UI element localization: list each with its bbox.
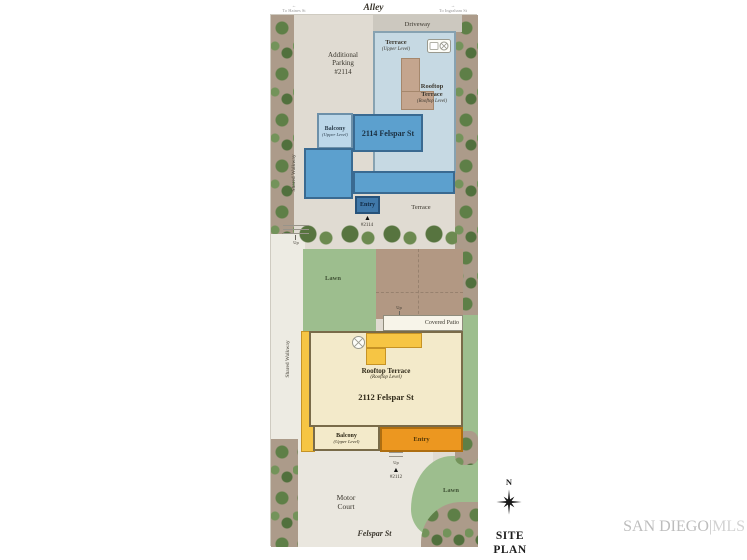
balcony-2112-sub: (Upper Level): [334, 439, 360, 444]
covered-patio-label: Covered Patio: [425, 320, 459, 327]
balcony-2112: Balcony (Upper Level): [313, 425, 380, 451]
compass-rose-icon: [495, 488, 523, 516]
motor-court-label: Motor Court: [316, 493, 376, 511]
up-2112-label: Up: [386, 460, 406, 465]
site-plan-title: SITE PLAN: [478, 530, 542, 558]
covered-patio: Covered Patio: [383, 315, 463, 331]
mls-watermark-secondary: MLS: [712, 518, 745, 535]
spa-icon-2112: [351, 335, 366, 350]
site-plan-sheet: Alley ←To Haines St →To Ingraham St Driv…: [270, 4, 477, 548]
balcony-2114-sub: (Upper Level): [322, 132, 348, 137]
building-2114-wing-left: [304, 148, 353, 199]
shared-walkway-lower-label: Shared Walkway: [285, 319, 295, 399]
balcony-2114: Balcony (Upper Level): [317, 113, 353, 149]
roof-deck-step-2112: [366, 348, 386, 365]
up-upper-label: Up: [283, 240, 309, 245]
spa-icon-2114: [427, 39, 451, 53]
rooftop-terrace-2114-label: Rooftop Terrace (Rooftop Level): [409, 83, 455, 104]
entry-2114-triangle: ▲: [355, 214, 380, 222]
driveway-label: Driveway: [373, 21, 462, 29]
building-2114: 2114 Felspar St: [353, 114, 423, 152]
rooftop-terrace-2112-label: Rooftop Terrace (Rooftop Level): [331, 367, 441, 381]
lawn-mid-label: Lawn: [303, 275, 363, 283]
up-mid-label: Up: [389, 305, 409, 310]
roof-deck-bar-2112: [366, 333, 422, 348]
shared-walkway-upper-label: Shared Walkway: [291, 133, 301, 213]
felspar-street-label: Felspar St: [271, 529, 478, 539]
unit-2114-marker: #2114: [353, 223, 381, 229]
terrace-upper-label: Terrace (Upper Level): [375, 39, 417, 53]
garden-dashed-line-v: [418, 249, 419, 319]
page: { "header": { "alley": "Alley", "street_…: [0, 0, 747, 560]
unit-2112-marker: #2112: [381, 475, 411, 481]
additional-parking-label: Additional Parking #2114: [311, 51, 375, 76]
mls-watermark: SAN DIEGO|MLS: [623, 518, 745, 536]
building-2114-wing-wide: [353, 171, 455, 194]
street-left-label: ←To Haines St: [274, 4, 314, 14]
entry-2112-label: Entry: [413, 436, 429, 443]
entry-2114: Entry: [355, 196, 380, 214]
building-2112-name: 2112 Felspar St: [331, 392, 441, 402]
stairs-2112: [389, 452, 403, 460]
garden-dashed-line-h: [376, 292, 463, 293]
mls-watermark-primary: SAN DIEGO: [623, 518, 709, 535]
entry-2114-label: Entry: [360, 202, 375, 208]
site-map: Driveway Terrace (Upper Level) Rooftop T…: [270, 14, 477, 546]
compass-north-label: N: [494, 477, 524, 487]
stairs-upper-walkway: [283, 225, 309, 235]
entry-2112: Entry: [380, 427, 463, 452]
lawn-mid: [303, 249, 376, 331]
entry-2112-triangle: ▲: [386, 466, 406, 474]
lawn-bottom-label: Lawn: [431, 487, 471, 495]
ground-terrace-label: Terrace: [401, 204, 441, 212]
street-right-label: →To Ingraham St: [433, 4, 473, 14]
building-2114-name: 2114 Felspar St: [362, 129, 414, 138]
